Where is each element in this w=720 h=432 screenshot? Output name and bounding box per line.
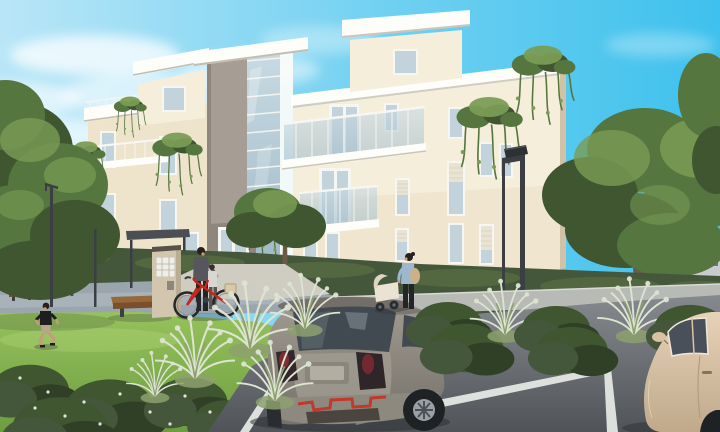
rear-wheel <box>403 389 445 431</box>
mailbox-panel <box>156 257 175 277</box>
door-handle <box>702 371 712 374</box>
license-plate <box>310 366 344 380</box>
architectural-rendering: Architectural rendering — modern cream a… <box>0 0 720 432</box>
attic-window <box>393 49 418 75</box>
mailbox-pillar <box>152 245 181 318</box>
shutter-window <box>447 161 465 216</box>
shutter-window <box>395 178 410 216</box>
lamp-post-left-2 <box>94 229 97 307</box>
intercom <box>167 281 174 290</box>
shutter-window <box>479 224 494 265</box>
penthouse-window <box>162 86 186 112</box>
tail-light <box>356 352 386 390</box>
